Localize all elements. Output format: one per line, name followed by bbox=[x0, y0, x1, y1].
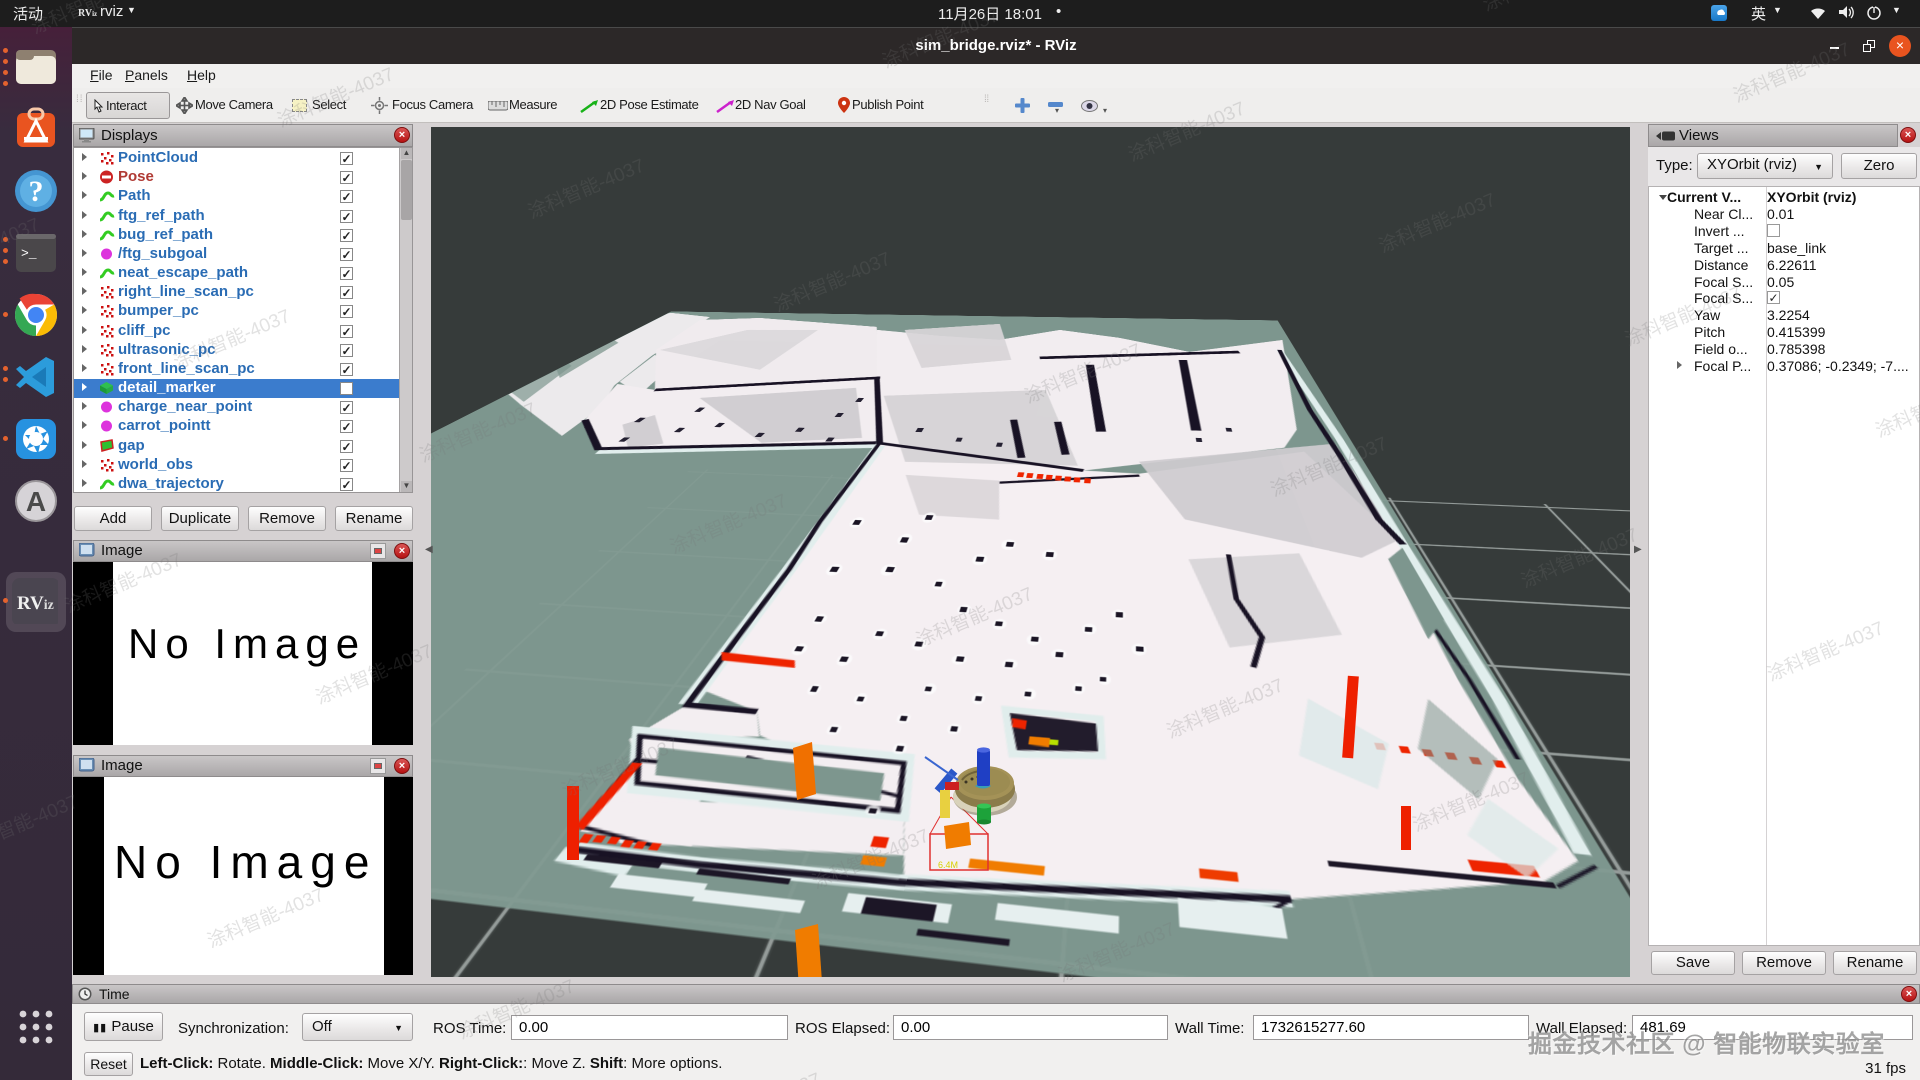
svg-text:A: A bbox=[26, 486, 46, 517]
svg-text:>_: >_ bbox=[21, 246, 37, 261]
svg-text:6.4M: 6.4M bbox=[938, 860, 958, 870]
svg-text:?: ? bbox=[29, 175, 44, 208]
